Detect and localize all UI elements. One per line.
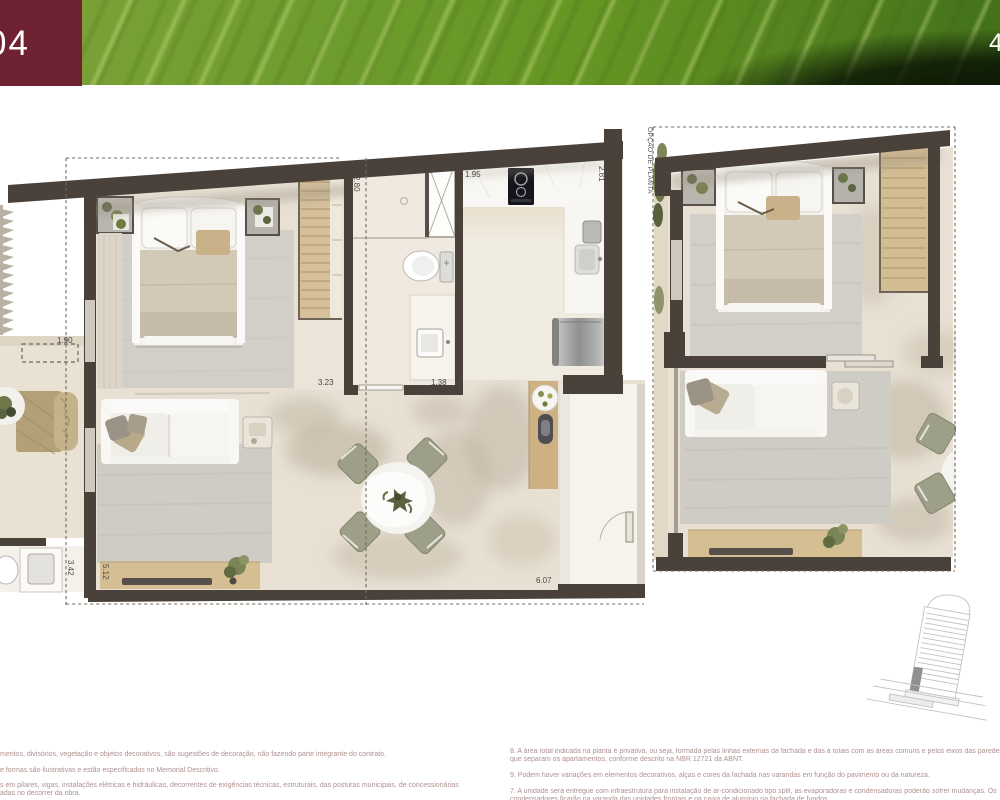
svg-text:1.90: 1.90 (57, 336, 73, 345)
svg-text:6.07: 6.07 (536, 576, 552, 585)
svg-text:OPÇÃO DE PLANTA: OPÇÃO DE PLANTA (646, 127, 655, 194)
svg-text:2.80: 2.80 (352, 176, 361, 192)
svg-text:2.81: 2.81 (597, 166, 606, 182)
svg-text:3.42: 3.42 (66, 560, 75, 576)
svg-text:3.23: 3.23 (318, 378, 334, 387)
svg-text:1.38: 1.38 (431, 378, 447, 387)
svg-text:1.95: 1.95 (465, 170, 481, 179)
svg-text:5.12: 5.12 (101, 564, 110, 580)
